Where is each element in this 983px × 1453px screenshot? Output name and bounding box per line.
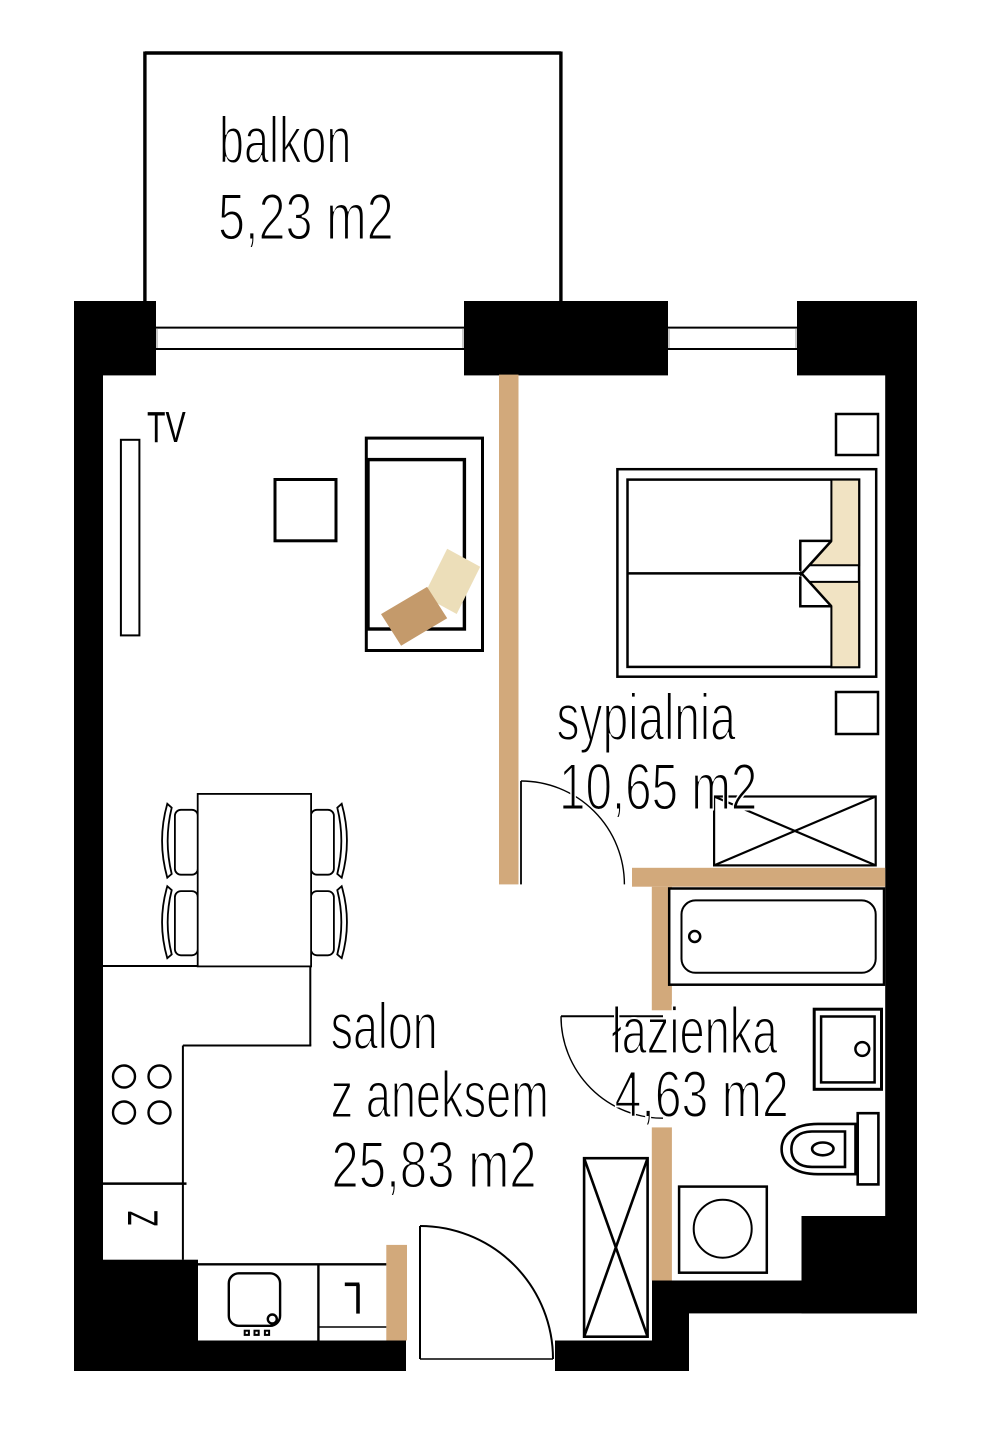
svg-text:10,65 m2: 10,65 m2 xyxy=(559,751,757,824)
svg-text:sypialnia: sypialnia xyxy=(557,681,737,754)
svg-text:25,83 m2: 25,83 m2 xyxy=(331,1129,536,1202)
svg-text:salon: salon xyxy=(331,990,438,1063)
svg-text:5,23 m2: 5,23 m2 xyxy=(218,180,394,253)
svg-text:Z: Z xyxy=(120,1210,168,1226)
svg-text:4,63 m2: 4,63 m2 xyxy=(615,1058,789,1131)
svg-text:balkon: balkon xyxy=(219,104,351,177)
svg-text:z aneksem: z aneksem xyxy=(331,1059,549,1132)
svg-text:łazienka: łazienka xyxy=(612,994,778,1067)
svg-text:TV: TV xyxy=(147,403,186,452)
